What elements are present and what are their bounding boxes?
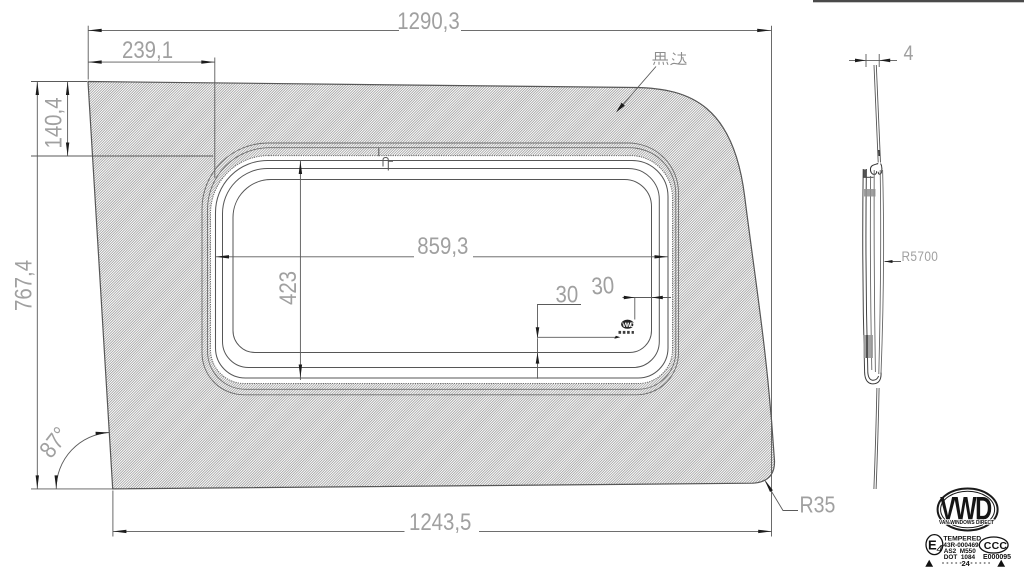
svg-text:DOT 1084: DOT 1084 <box>944 554 976 561</box>
svg-text:E000095: E000095 <box>983 554 1011 561</box>
svg-text:859,3: 859,3 <box>417 232 468 259</box>
svg-text:4: 4 <box>937 543 943 555</box>
svg-text:4: 4 <box>904 41 914 65</box>
svg-text:423: 423 <box>274 271 301 305</box>
svg-text:CCC: CCC <box>984 540 1008 552</box>
svg-text:24: 24 <box>962 559 971 568</box>
svg-text:VAN WINDOWS DIRECT: VAN WINDOWS DIRECT <box>939 520 995 526</box>
svg-text:1243,5: 1243,5 <box>409 508 471 535</box>
svg-text:767,4: 767,4 <box>10 260 37 311</box>
svg-text:30: 30 <box>556 281 579 308</box>
svg-text:239,1: 239,1 <box>122 36 173 63</box>
svg-text:87°: 87° <box>34 422 74 463</box>
svg-text:VWD: VWD <box>622 323 635 329</box>
svg-text:140,4: 140,4 <box>40 97 67 148</box>
svg-text:30: 30 <box>590 271 615 299</box>
svg-text:1290,3: 1290,3 <box>397 7 459 34</box>
svg-text:R35: R35 <box>800 492 836 518</box>
svg-text:R5700: R5700 <box>902 248 939 264</box>
